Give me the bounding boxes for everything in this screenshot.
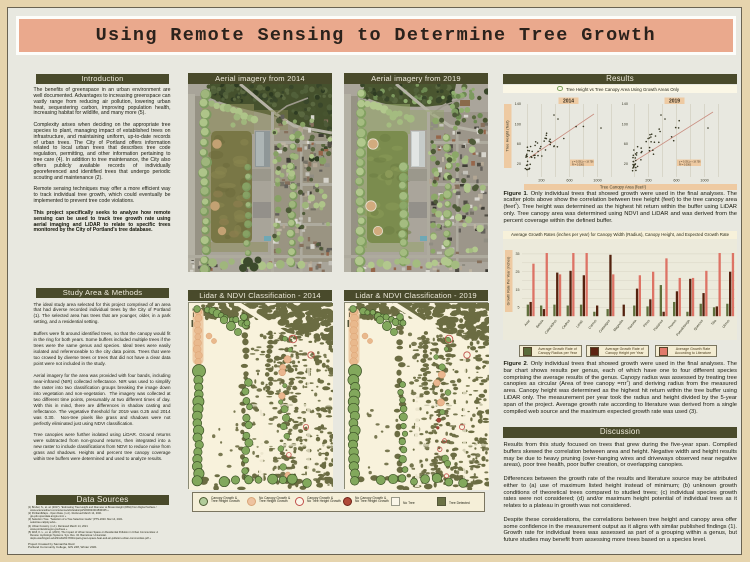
svg-text:2019: 2019	[669, 99, 680, 105]
svg-text:140: 140	[515, 102, 521, 106]
svg-text:100: 100	[515, 123, 521, 127]
svg-text:1000: 1000	[700, 179, 708, 183]
svg-text:Tree Height (feet): Tree Height (feet)	[505, 120, 510, 152]
svg-text:15: 15	[516, 287, 520, 291]
svg-text:20: 20	[624, 162, 628, 166]
svg-text:600: 600	[566, 179, 572, 183]
svg-text:5: 5	[518, 305, 520, 309]
svg-text:60: 60	[624, 142, 628, 146]
svg-text:Growth Rate Per Year (inches): Growth Rate Per Year (inches)	[507, 256, 511, 305]
svg-text:2014: 2014	[563, 99, 574, 105]
svg-text:60: 60	[517, 142, 521, 146]
svg-text:100: 100	[622, 123, 628, 127]
svg-text:Tree Canopy Area (feet²): Tree Canopy Area (feet²)	[600, 185, 647, 190]
svg-text:R² = 0.5363: R² = 0.5363	[679, 163, 692, 166]
svg-text:R² = 0.5363: R² = 0.5363	[572, 163, 585, 166]
svg-text:140: 140	[622, 102, 628, 106]
svg-text:25: 25	[516, 270, 520, 274]
svg-text:y = 0.0911x + 18.756: y = 0.0911x + 18.756	[572, 162, 594, 164]
svg-text:600: 600	[673, 179, 679, 183]
svg-text:200: 200	[538, 179, 544, 183]
svg-text:200: 200	[645, 179, 651, 183]
svg-text:y = 0.0911x + 18.756: y = 0.0911x + 18.756	[679, 162, 701, 164]
svg-text:1000: 1000	[593, 179, 601, 183]
svg-text:20: 20	[517, 162, 521, 166]
svg-text:35: 35	[516, 252, 520, 256]
